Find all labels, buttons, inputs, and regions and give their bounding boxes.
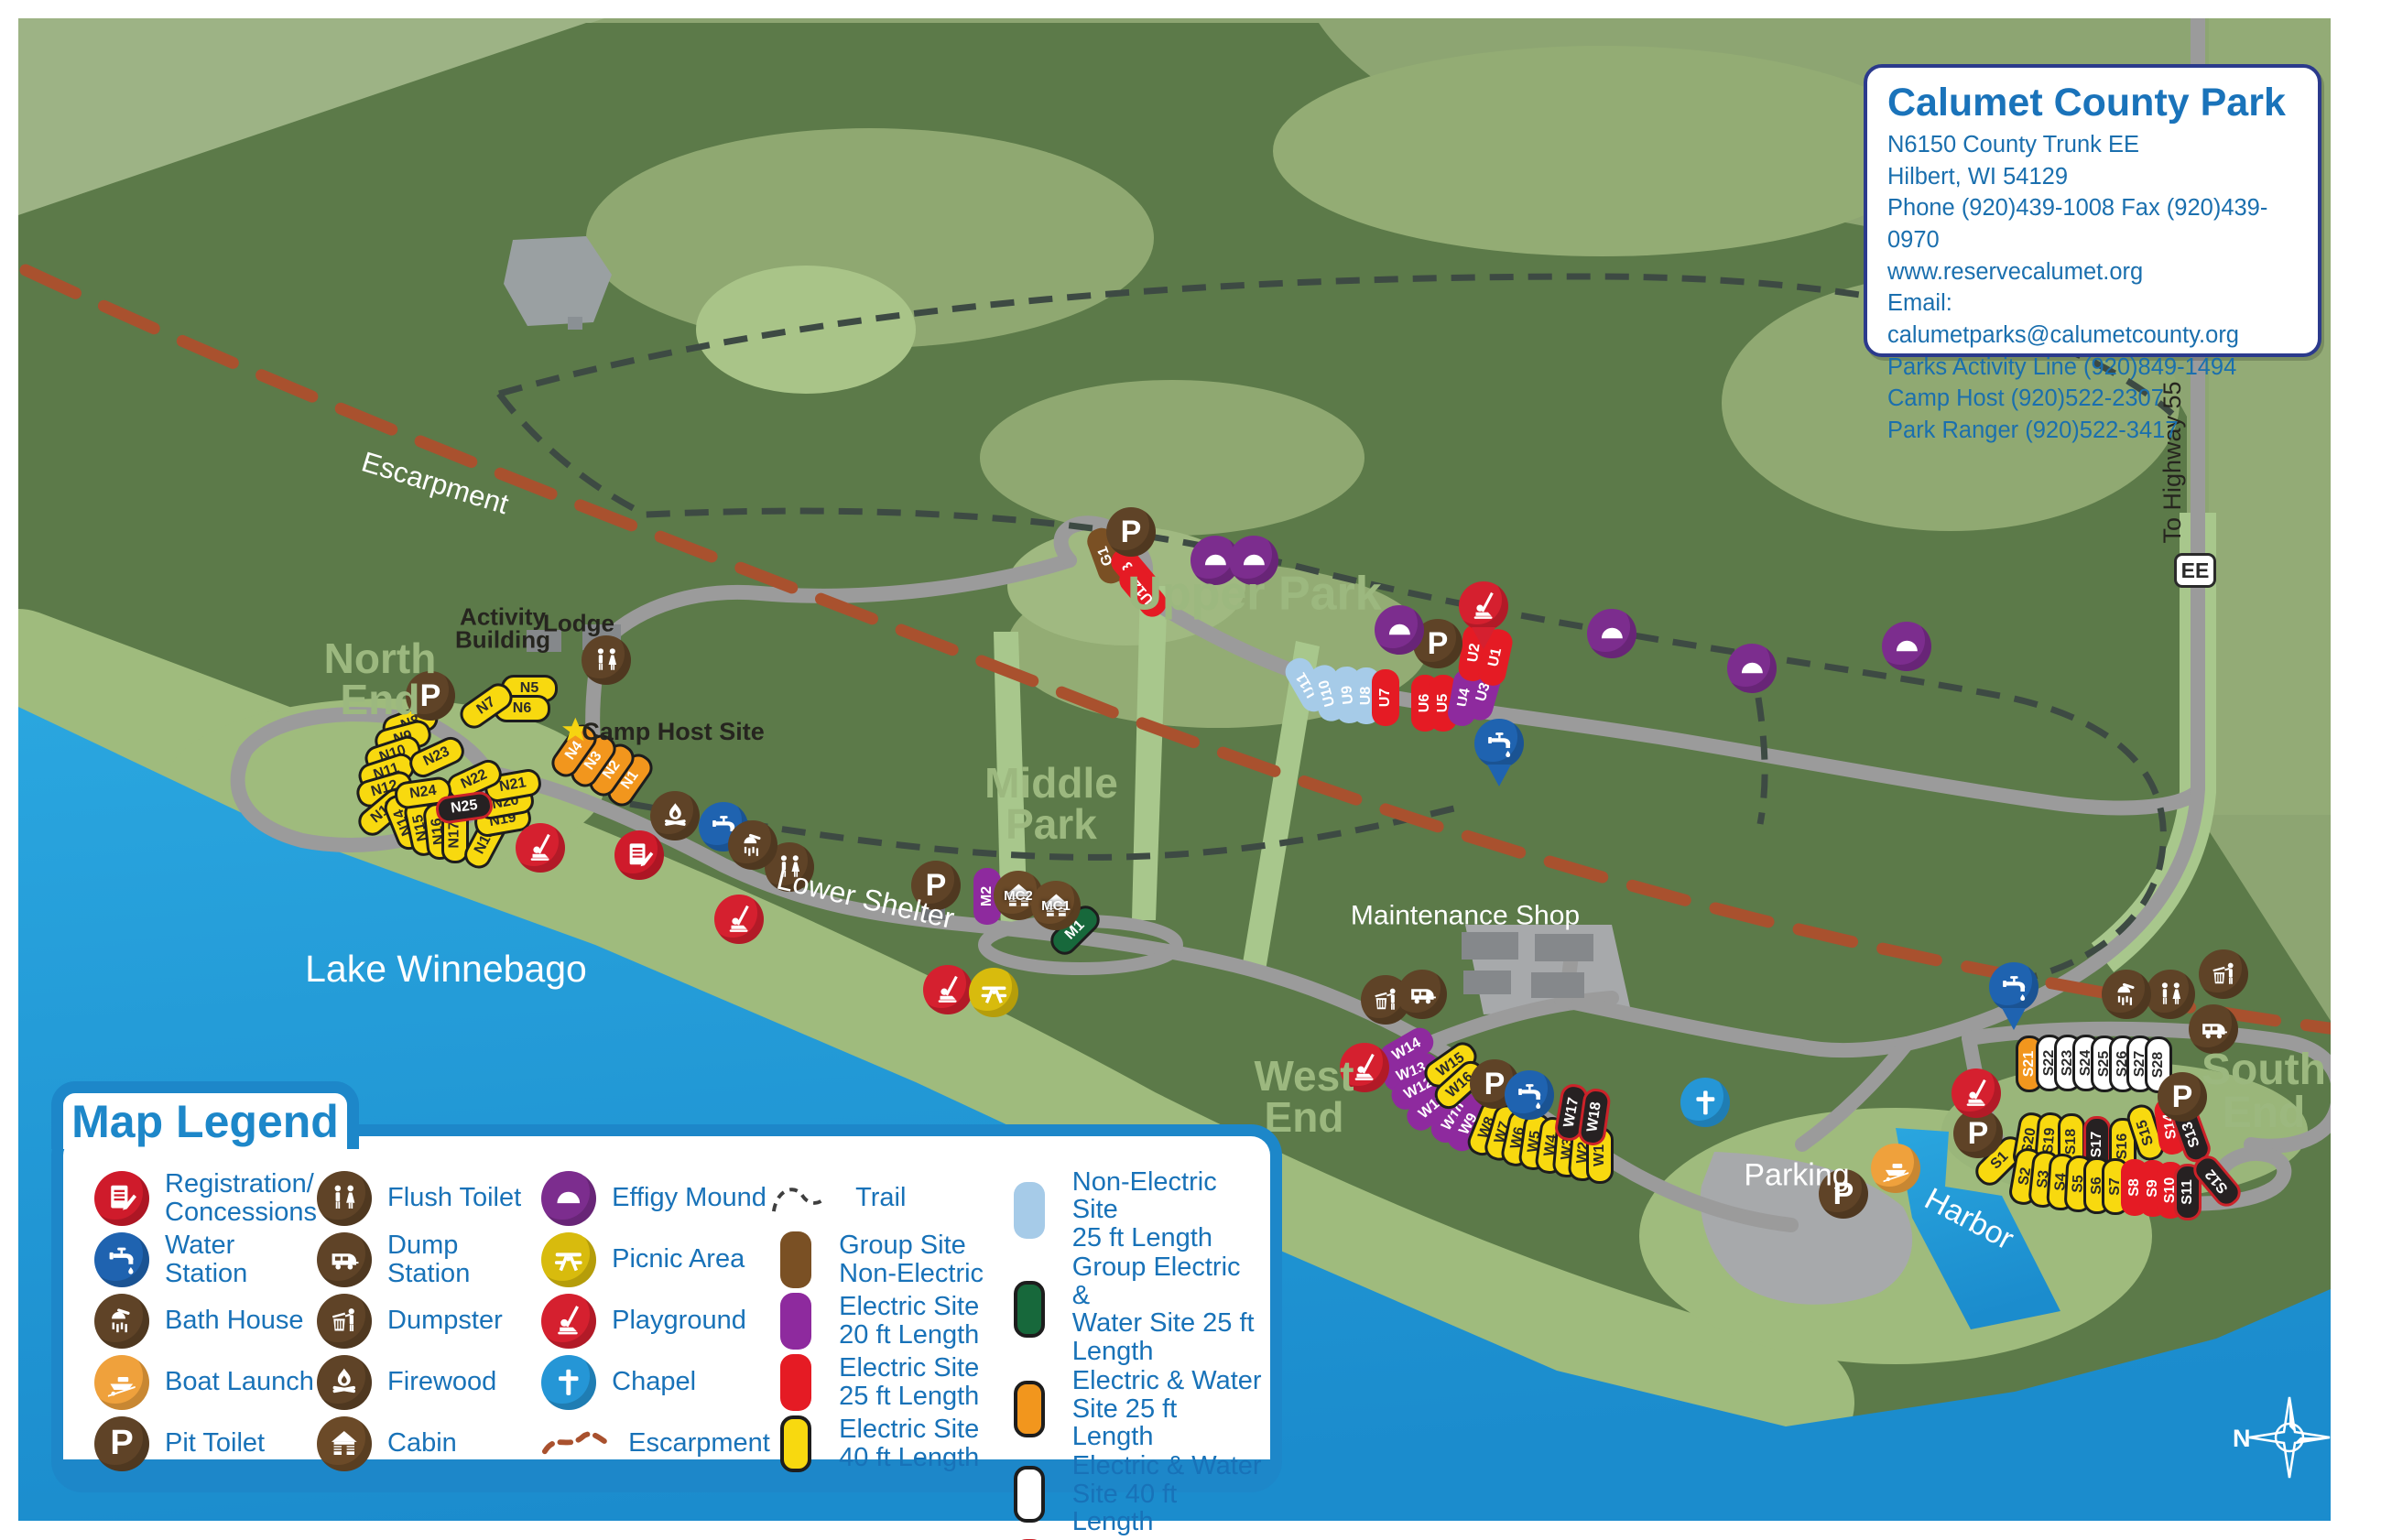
trail-swatch [768, 1179, 840, 1218]
chapel-icon [541, 1355, 596, 1410]
legend-item-group-electric-water-site-25-ft-length-label: Group Electric &Water Site 25 ftLength [1072, 1253, 1265, 1365]
legend-item-escarpment-label: Escarpment [628, 1429, 770, 1457]
legend-item-electric-water-site-40-ft-length: Electric & WaterSite 40 ft Length [1002, 1451, 1265, 1536]
legend-column-1: Registration/ConcessionsWater StationBat… [94, 1167, 317, 1540]
legend-item-dumpster: Dumpster [317, 1290, 541, 1351]
legend-item-pit-toilet: PPit Toilet [94, 1413, 317, 1474]
picnic-icon [541, 1232, 596, 1287]
legend-item-boat-launch: Boat Launch [94, 1351, 317, 1413]
pit-toilet-letter: P [110, 1424, 133, 1463]
legend-item-dump-station: Dump Station [317, 1229, 541, 1290]
legend-item-electric-site-20-ft-length: Electric Site20 ft Length [768, 1290, 1002, 1351]
water-icon [94, 1232, 149, 1287]
park-info-line-2: Hilbert, WI 54129 [1887, 161, 2298, 193]
legend-item-flush-toilet-label: Flush Toilet [387, 1184, 521, 1211]
park-info-box: Calumet County Park N6150 County Trunk E… [1864, 64, 2321, 357]
legend-column-5: Non-Electric Site25 ft LengthGroup Elect… [1002, 1167, 1265, 1540]
legend-item-trail-label: Trail [855, 1184, 906, 1211]
legend-grid: Registration/ConcessionsWater StationBat… [63, 1136, 1270, 1540]
legend-item-chapel: Chapel [541, 1351, 768, 1413]
legend-item-dumpster-label: Dumpster [387, 1307, 503, 1334]
legend-item-electric-site-40-ft-length-label: Electric Site40 ft Length [839, 1415, 979, 1471]
park-info-line-1: N6150 County Trunk EE [1887, 129, 2298, 161]
site-swatch-e20 [780, 1293, 811, 1350]
compass-rose-icon: N [2223, 1390, 2355, 1485]
legend-item-electric-site-20-ft-length-label: Electric Site20 ft Length [839, 1293, 979, 1349]
legend-item-dump-station-label: Dump Station [387, 1231, 541, 1287]
bath-icon [94, 1294, 149, 1349]
park-info-line-6: Parks Activity Line (920)849-1494 [1887, 352, 2298, 384]
legend-item-electric-site-25-ft-length: Electric Site25 ft Length [768, 1351, 1002, 1413]
fire-icon [317, 1355, 372, 1410]
county-road-ee-label: EE [2181, 559, 2210, 583]
park-info-line-5: Email: calumetparks@calumetcounty.org [1887, 287, 2298, 351]
legend-item-cabin-label: Cabin [387, 1429, 457, 1457]
dumpster-icon [317, 1294, 372, 1349]
registration-icon [94, 1171, 149, 1226]
site-swatch-e40 [780, 1415, 811, 1472]
site-swatch-e25 [780, 1354, 811, 1411]
legend-item-firewood-label: Firewood [387, 1368, 496, 1395]
park-info-line-7: Camp Host (920)522-2307 [1887, 383, 2298, 415]
county-road-ee-badge: EE [2174, 553, 2216, 588]
legend-item-electric-site-25-ft-length-label: Electric Site25 ft Length [839, 1354, 979, 1410]
legend-item-firewood: Firewood [317, 1351, 541, 1413]
legend-item-playground: Playground [541, 1290, 768, 1351]
legend-item-electric-water-site-25-ft-length-label: Electric & WaterSite 25 ft Length [1072, 1367, 1265, 1450]
legend-item-boat-launch-label: Boat Launch [165, 1368, 314, 1395]
legend-column-4: TrailGroup SiteNon-ElectricElectric Site… [768, 1167, 1002, 1540]
legend-item-flush-toilet: Flush Toilet [317, 1167, 541, 1229]
legend-item-effigy-mound-label: Effigy Mound [612, 1184, 766, 1211]
legend-item-cabin: Cabin [317, 1413, 541, 1474]
legend-column-3: Effigy MoundPicnic AreaPlaygroundChapelE… [541, 1167, 768, 1540]
park-info-line-8: Park Ranger (920)522-3417 [1887, 415, 2298, 447]
dumpstation-icon [317, 1232, 372, 1287]
legend-item-electric-site-40-ft-length: Electric Site40 ft Length [768, 1413, 1002, 1474]
legend-item-picnic-area: Picnic Area [541, 1229, 768, 1290]
map-legend: Map Legend Registration/ConcessionsWater… [51, 1124, 1282, 1492]
legend-item-bath-house-label: Bath House [165, 1307, 304, 1334]
legend-item-electric-water-site-40-ft-length-label: Electric & WaterSite 40 ft Length [1072, 1452, 1265, 1535]
boat-icon [94, 1355, 149, 1410]
playground-icon [541, 1294, 596, 1349]
legend-item-trail: Trail [768, 1167, 1002, 1229]
legend-column-2: Flush ToiletDump StationDumpsterFirewood… [317, 1167, 541, 1540]
legend-item-effigy-mound: Effigy Mound [541, 1167, 768, 1229]
flush-icon [317, 1171, 372, 1226]
park-info-line-3: Phone (920)439-1008 Fax (920)439-0970 [1887, 192, 2298, 255]
pit-icon: P [94, 1416, 149, 1471]
legend-item-chapel-label: Chapel [612, 1368, 696, 1395]
legend-item-water-station-label: Water Station [165, 1231, 317, 1287]
cabin-icon [317, 1416, 372, 1471]
legend-item-water-station: Water Station [94, 1229, 317, 1290]
legend-item-bath-house: Bath House [94, 1290, 317, 1351]
effigy-icon [541, 1171, 596, 1226]
park-info-lines: N6150 County Trunk EEHilbert, WI 54129Ph… [1887, 129, 2298, 447]
site-swatch-ew40 [1014, 1466, 1045, 1523]
legend-item-registration-concessions-label: Registration/Concessions [165, 1170, 317, 1226]
legend-title: Map Legend [71, 1095, 339, 1148]
site-swatch-ne25 [1014, 1182, 1045, 1239]
legend-item-group-electric-water-site-25-ft-length: Group Electric &Water Site 25 ftLength [1002, 1253, 1265, 1366]
legend-item-registration-concessions: Registration/Concessions [94, 1167, 317, 1229]
compass-n-label: N [2233, 1425, 2251, 1452]
legend-item-non-electric-site-25-ft-length: Non-Electric Site25 ft Length [1002, 1167, 1265, 1253]
legend-item-pit-toilet-label: Pit Toilet [165, 1429, 265, 1457]
legend-item-electric-water-site-25-ft-length: Electric & WaterSite 25 ft Length [1002, 1366, 1265, 1451]
legend-title-tab: Map Legend [51, 1081, 359, 1149]
park-title: Calumet County Park [1887, 81, 2298, 125]
park-info-line-4: www.reservecalumet.org [1887, 256, 2298, 288]
legend-item-group-site-non-electric: Group SiteNon-Electric [768, 1229, 1002, 1290]
legend-item-picnic-area-label: Picnic Area [612, 1245, 745, 1273]
site-swatch-group [780, 1231, 811, 1288]
site-swatch-ew25 [1014, 1381, 1045, 1437]
park-map: N1N2N3N4N5N6N7N8N9N10N11N12N13N14N15N16N… [0, 0, 2381, 1540]
esc-swatch [541, 1425, 613, 1463]
legend-item-non-electric-site-25-ft-length-label: Non-Electric Site25 ft Length [1072, 1168, 1265, 1252]
legend-item-playground-label: Playground [612, 1307, 746, 1334]
legend-item-escarpment: Escarpment [541, 1413, 768, 1474]
legend-item-group-site-non-electric-label: Group SiteNon-Electric [839, 1231, 984, 1287]
site-swatch-gew25 [1014, 1281, 1045, 1338]
